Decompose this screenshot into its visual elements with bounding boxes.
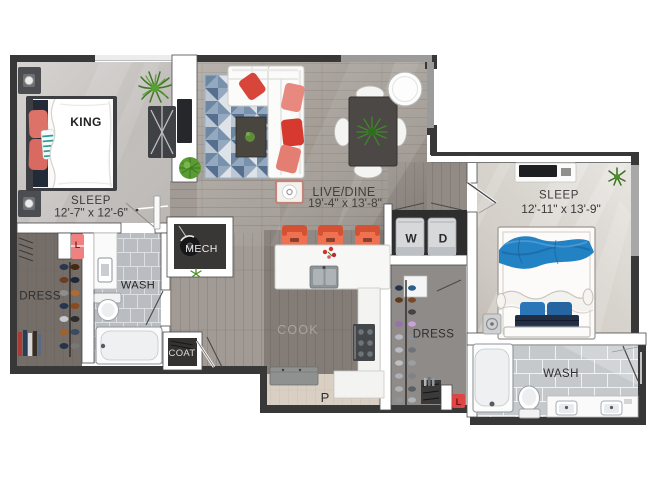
svg-text:DRESS: DRESS [413, 329, 455, 341]
svg-text:MECH: MECH [185, 243, 218, 255]
svg-text:12'-11" x 13'-9": 12'-11" x 13'-9" [521, 202, 601, 216]
svg-text:12'-7" x 12'-6": 12'-7" x 12'-6" [54, 206, 128, 220]
svg-text:D: D [439, 232, 448, 246]
svg-text:L: L [456, 397, 462, 408]
svg-text:COOK: COOK [277, 323, 319, 337]
svg-text:SLEEP: SLEEP [539, 190, 579, 202]
svg-text:P: P [321, 390, 330, 405]
svg-text:19'-4" x 13'-8": 19'-4" x 13'-8" [308, 196, 382, 210]
svg-text:W: W [405, 232, 417, 246]
svg-text:L: L [75, 240, 81, 250]
svg-text:COAT: COAT [169, 348, 196, 359]
svg-text:DRESS: DRESS [19, 291, 61, 303]
svg-text:WASH: WASH [121, 280, 155, 292]
svg-text:KING: KING [70, 115, 102, 129]
svg-text:WASH: WASH [543, 368, 579, 380]
